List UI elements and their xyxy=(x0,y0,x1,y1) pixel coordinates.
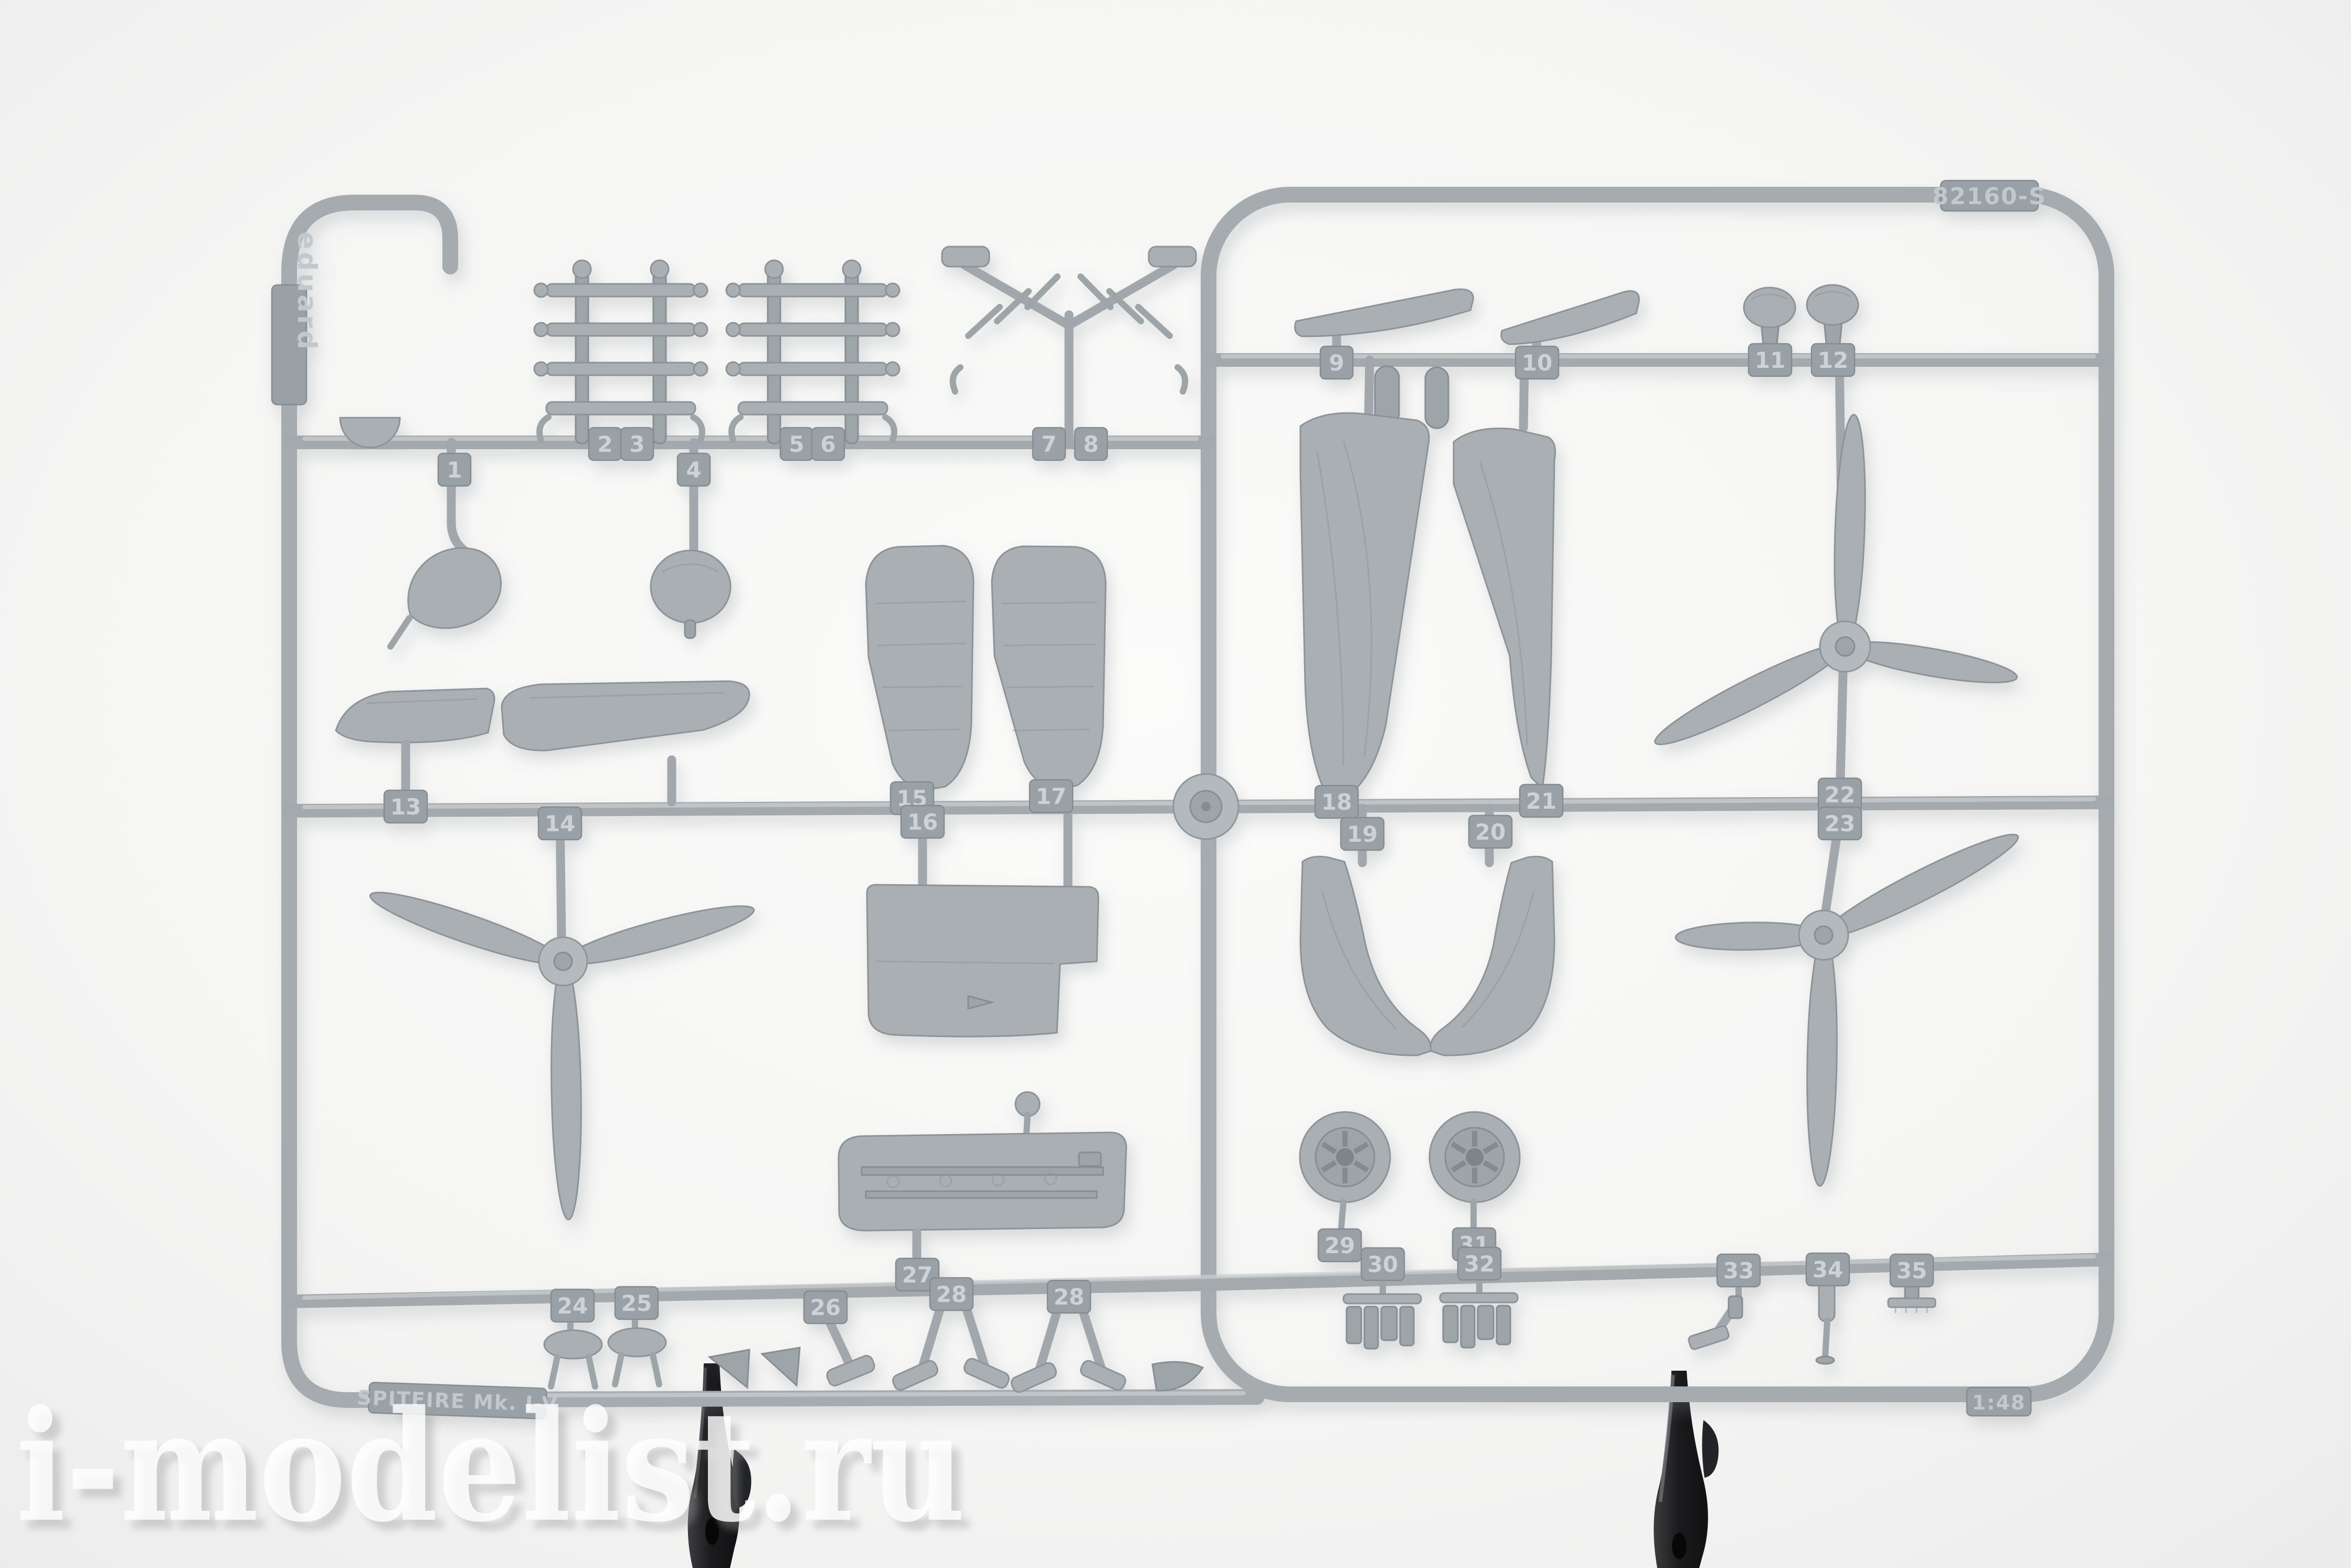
part-number-tag-22: 22 xyxy=(1818,778,1861,811)
svg-text:16: 16 xyxy=(907,809,938,835)
part-number-tag-2: 2 xyxy=(589,428,621,460)
svg-text:22: 22 xyxy=(1825,782,1855,808)
part-number-tag-24: 24 xyxy=(551,1289,594,1322)
part-number-tag-9: 9 xyxy=(1320,346,1353,379)
sprue-code-label: 82160-S xyxy=(1932,183,2046,210)
svg-text:27: 27 xyxy=(902,1262,933,1288)
part-number-tag-23: 23 xyxy=(1818,807,1861,840)
svg-text:28: 28 xyxy=(1054,1284,1084,1310)
part-number-tag-14: 14 xyxy=(538,807,581,840)
svg-text:34: 34 xyxy=(1813,1257,1843,1283)
svg-text:8: 8 xyxy=(1083,431,1098,457)
part-number-tag-20: 20 xyxy=(1469,815,1512,848)
part-number-tag-8: 8 xyxy=(1075,428,1107,460)
svg-text:9: 9 xyxy=(1329,350,1344,376)
brand-tab-label: eduard xyxy=(292,231,322,352)
svg-text:32: 32 xyxy=(1464,1251,1495,1277)
part-number-tag-28: 28 xyxy=(930,1278,973,1310)
svg-text:28: 28 xyxy=(936,1281,967,1307)
svg-text:35: 35 xyxy=(1897,1258,1927,1284)
svg-text:1: 1 xyxy=(447,457,462,483)
svg-text:5: 5 xyxy=(789,431,804,457)
svg-text:10: 10 xyxy=(1522,350,1552,376)
svg-text:30: 30 xyxy=(1368,1252,1398,1277)
product-photo: 1234567891011121314151617181920212223242… xyxy=(0,0,2351,1568)
part-number-tag-25: 25 xyxy=(615,1287,658,1319)
svg-text:18: 18 xyxy=(1321,789,1352,815)
part-number-tag-28: 28 xyxy=(1047,1280,1090,1313)
svg-text:20: 20 xyxy=(1475,819,1506,845)
svg-text:6: 6 xyxy=(820,431,835,457)
part-number-tag-12: 12 xyxy=(1812,344,1855,376)
part-number-tag-30: 30 xyxy=(1361,1248,1404,1280)
scale-tab: 1:48 xyxy=(1967,1387,2031,1416)
svg-text:14: 14 xyxy=(545,811,575,836)
svg-text:13: 13 xyxy=(390,794,421,820)
part-number-tag-17: 17 xyxy=(1030,780,1073,812)
scale-label: 1:48 xyxy=(1972,1391,2026,1414)
sprue-photo-canvas: 1234567891011121314151617181920212223242… xyxy=(0,0,2351,1568)
svg-text:33: 33 xyxy=(1723,1258,1754,1284)
svg-text:7: 7 xyxy=(1041,431,1056,457)
watermark: i-modelist.ru i-modelist.ru xyxy=(16,1378,974,1564)
svg-text:21: 21 xyxy=(1526,788,1556,814)
sprue-code-tab: 82160-S xyxy=(1932,181,2046,211)
svg-text:3: 3 xyxy=(629,431,644,457)
part-number-tag-16: 16 xyxy=(901,806,944,838)
part-number-tag-6: 6 xyxy=(812,428,844,460)
part-number-tag-5: 5 xyxy=(780,428,813,460)
part-number-tag-10: 10 xyxy=(1516,346,1559,379)
photo-background xyxy=(0,0,2351,1568)
part-number-tag-19: 19 xyxy=(1341,818,1384,850)
svg-text:19: 19 xyxy=(1347,821,1378,847)
part-number-tag-34: 34 xyxy=(1806,1253,1849,1286)
svg-text:23: 23 xyxy=(1825,811,1855,836)
part-number-tag-18: 18 xyxy=(1315,786,1358,818)
part-number-tag-11: 11 xyxy=(1749,344,1792,376)
watermark-text: i-modelist.ru xyxy=(16,1378,966,1556)
part-number-tag-4: 4 xyxy=(677,453,710,486)
svg-text:25: 25 xyxy=(621,1290,652,1316)
part-number-tag-3: 3 xyxy=(621,428,653,460)
svg-text:17: 17 xyxy=(1036,783,1066,809)
svg-text:24: 24 xyxy=(557,1293,588,1319)
svg-text:4: 4 xyxy=(686,457,701,483)
part-number-tag-33: 33 xyxy=(1717,1254,1760,1287)
svg-text:2: 2 xyxy=(597,431,612,457)
svg-text:29: 29 xyxy=(1325,1233,1355,1258)
part-number-tag-29: 29 xyxy=(1318,1229,1361,1262)
part-number-tag-35: 35 xyxy=(1890,1254,1933,1287)
svg-text:12: 12 xyxy=(1818,347,1848,373)
svg-text:26: 26 xyxy=(810,1295,841,1320)
svg-text:11: 11 xyxy=(1755,347,1785,373)
part-number-tag-7: 7 xyxy=(1033,428,1065,460)
part-number-tag-32: 32 xyxy=(1458,1247,1501,1280)
part-number-tag-21: 21 xyxy=(1520,785,1563,817)
part-number-tag-26: 26 xyxy=(804,1291,847,1323)
part-number-tag-1: 1 xyxy=(438,453,471,486)
part-number-tag-13: 13 xyxy=(384,790,427,823)
